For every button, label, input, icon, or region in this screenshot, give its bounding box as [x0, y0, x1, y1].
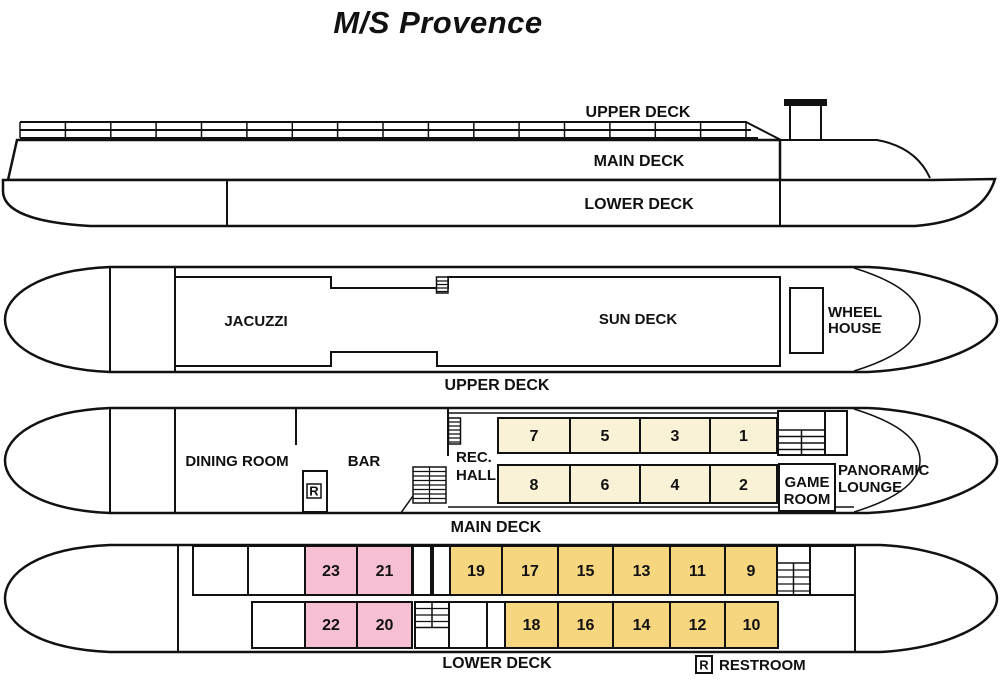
upper-deck-plan: JACUZZI SUN DECK WHEEL HOUSE UPPER DECK	[5, 267, 997, 394]
side-label-upper-deck: UPPER DECK	[586, 104, 691, 121]
wheel-house-label-line1: WHEEL	[828, 304, 882, 321]
panoramic-lounge-label-line2: LOUNGE	[838, 479, 902, 496]
cabin-11-number: 11	[689, 563, 706, 580]
cabin-3-number: 3	[671, 428, 680, 445]
cabin-5-number: 5	[601, 428, 610, 445]
lower-deck-caption: LOWER DECK	[442, 655, 552, 672]
lower-deck-plan: 23 21 19 17 15 13 11 9 22 20 18	[5, 545, 997, 672]
cabin-23-number: 23	[322, 563, 340, 580]
legend: R RESTROOM	[696, 656, 806, 674]
forward-room	[810, 546, 855, 595]
cabin-12-number: 12	[689, 617, 707, 634]
wheel-house-room	[790, 288, 823, 353]
cabin-8-number: 8	[530, 477, 539, 494]
cabin-20-number: 20	[376, 617, 394, 634]
side-label-main-deck: MAIN DECK	[594, 153, 685, 170]
stairwell-lower-deck-forward	[777, 546, 810, 595]
restroom-symbol: R	[309, 484, 319, 499]
cabin-15-number: 15	[577, 563, 595, 580]
cabin-17-number: 17	[521, 563, 539, 580]
cabin-19-number: 19	[467, 563, 485, 580]
upper-deck-railing	[20, 122, 780, 140]
cabin-2-number: 2	[739, 477, 748, 494]
forward-landing	[825, 411, 847, 455]
cabin-21-number: 21	[376, 563, 394, 580]
stairwell-lower-deck-center	[415, 602, 449, 648]
crew-room-1	[193, 546, 248, 595]
cabin-4-number: 4	[671, 477, 680, 494]
upper-deck-caption: UPPER DECK	[445, 377, 550, 394]
cabin-22-number: 22	[322, 617, 340, 634]
funnel	[790, 106, 821, 140]
stairs-icon-upper-deck	[437, 277, 449, 293]
cabin-1-number: 1	[739, 428, 748, 445]
panoramic-lounge-label-line1: PANORAMIC	[838, 462, 930, 479]
cabin-18-number: 18	[523, 617, 541, 634]
service-cell-2	[433, 546, 450, 595]
main-deck-caption: MAIN DECK	[451, 519, 542, 536]
service-cell-1	[413, 546, 431, 595]
stairs-icon-rec-hall	[449, 418, 461, 444]
rec-hall-label-line1: REC.	[456, 449, 492, 466]
cabin-13-number: 13	[633, 563, 651, 580]
hull-side	[3, 179, 995, 226]
game-room-label-line2: ROOM	[784, 491, 831, 508]
funnel-cap	[784, 99, 827, 106]
service-cell-3	[487, 602, 505, 648]
side-label-lower-deck: LOWER DECK	[584, 196, 694, 213]
cabin-9-number: 9	[747, 563, 756, 580]
game-room-label-line1: GAME	[785, 474, 830, 491]
bar-label: BAR	[348, 453, 381, 470]
deck-plan-page: M/S Provence UPPER DECK MAIN DECK LOWER …	[0, 0, 1000, 682]
dining-room-label: DINING ROOM	[185, 453, 288, 470]
page-title: M/S Provence	[333, 5, 542, 40]
jacuzzi-label: JACUZZI	[224, 313, 287, 330]
main-deck-plan: R 7 5 3 1 8 6 4 2	[5, 408, 997, 536]
legend-restroom-label: RESTROOM	[719, 657, 806, 674]
service-room	[449, 602, 487, 648]
crew-room-2	[248, 546, 305, 595]
cabin-10-number: 10	[743, 617, 761, 634]
crew-room-3	[252, 602, 305, 648]
cabin-14-number: 14	[633, 617, 651, 634]
foredeck-bulwark	[780, 140, 930, 178]
cabin-6-number: 6	[601, 477, 610, 494]
cabin-7-number: 7	[530, 428, 539, 445]
stairwell-main-deck-forward	[778, 411, 825, 455]
sun-deck-label: SUN DECK	[599, 311, 678, 328]
ship-deck-plan-canvas: M/S Provence UPPER DECK MAIN DECK LOWER …	[0, 0, 1000, 682]
rec-hall-label-line2: HALL	[456, 467, 496, 484]
legend-restroom-symbol: R	[699, 658, 709, 673]
cabin-16-number: 16	[577, 617, 595, 634]
wheel-house-label-line2: HOUSE	[828, 320, 881, 337]
side-profile-view: UPPER DECK MAIN DECK LOWER DECK	[3, 99, 995, 226]
